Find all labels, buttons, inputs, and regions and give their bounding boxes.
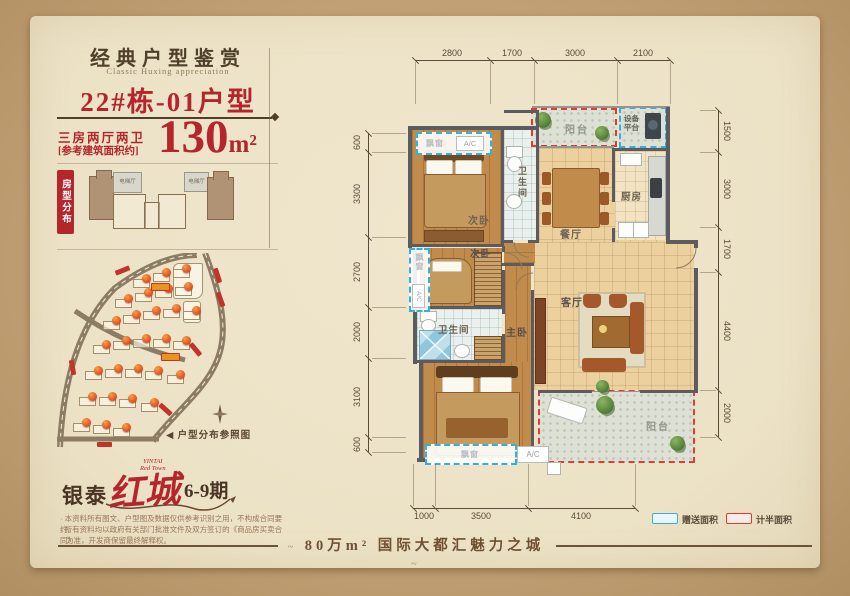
dim-ext <box>372 237 406 238</box>
dim-ext <box>670 62 671 104</box>
dim-ext <box>700 152 716 153</box>
ac-unit-label: A/C <box>456 136 484 151</box>
building-number-badge <box>162 268 171 277</box>
dim-bottom-1: 1000 <box>404 511 444 521</box>
highlighted-unit-right <box>207 177 234 220</box>
area-number: 130 <box>158 111 229 163</box>
building-number-badge <box>162 334 171 343</box>
legend-half-label: 计半面积 <box>756 513 792 526</box>
building-number-badge <box>184 282 193 291</box>
dim-left-2: 3300 <box>352 174 362 214</box>
tagline-flourish-right: ~ <box>411 559 420 570</box>
armchair <box>609 294 627 308</box>
building-number-badge <box>108 392 117 401</box>
section-line <box>57 249 278 250</box>
kitchen-cabinet <box>618 222 634 238</box>
highlighted-unit-left <box>89 176 114 220</box>
dim-ext <box>700 390 716 391</box>
building-number-badge <box>142 274 151 283</box>
dresser <box>424 230 484 242</box>
dim-top-2: 1700 <box>492 48 532 58</box>
bath1-label: 卫生间 <box>516 166 529 199</box>
building-number-badge <box>94 366 103 375</box>
floor-distribution-diagram: 电梯厅 电梯厅 <box>85 166 237 236</box>
road-label <box>97 442 112 447</box>
site-map-caption: ◀ 户型分布参照图 <box>166 427 251 441</box>
dim-ext <box>372 437 406 438</box>
building-number-badge <box>154 366 163 375</box>
building-number-badge <box>124 294 133 303</box>
dim-line-top <box>415 60 670 61</box>
ac-unit-label: A/C <box>412 284 425 308</box>
dim-ext <box>372 358 406 359</box>
tv-cabinet <box>535 298 546 384</box>
bed-pillow <box>442 377 474 393</box>
dim-ext <box>534 62 535 104</box>
dim-bottom-3: 4100 <box>561 511 601 521</box>
dim-right-1: 1500 <box>722 111 732 151</box>
dim-ext <box>372 452 406 453</box>
tagline: ~ 80万m² 国际大都汇魅力之城 ~ <box>283 534 549 572</box>
living-label: 客厅 <box>561 294 583 309</box>
dim-ext <box>415 62 416 104</box>
master-label: 主卧 <box>506 324 528 339</box>
dim-ext <box>635 464 636 506</box>
dining-chair <box>542 212 551 225</box>
dining-chair <box>600 172 609 185</box>
wardrobe <box>474 252 502 306</box>
stove-icon <box>650 178 662 198</box>
dim-ext <box>700 272 716 273</box>
spec-area-value: 130m² <box>158 110 257 164</box>
coffee-table <box>592 316 630 348</box>
kitchen-sink-icon <box>620 153 642 166</box>
facility-label <box>161 353 180 361</box>
building-number-badge <box>182 264 191 273</box>
dim-right-4: 4400 <box>722 311 732 351</box>
sink-icon <box>454 344 470 358</box>
facility-label <box>151 283 170 291</box>
bedroom2-label: 次卧 <box>468 212 490 227</box>
dim-ext <box>700 437 716 438</box>
bay-window-label: 飘窗 <box>426 138 444 149</box>
bed-pillow <box>480 377 512 393</box>
tagline-flourish-left: ~ <box>288 542 297 553</box>
page-subtitle: Classic Huxing appreciation <box>57 66 279 76</box>
flyer-page: 经典户型鉴赏 Classic Huxing appreciation 22#栋-… <box>0 0 850 596</box>
dining-chair <box>600 212 609 225</box>
building-number-badge <box>122 336 131 345</box>
dining-chair <box>600 192 609 205</box>
bath2-label: 卫生间 <box>438 322 470 336</box>
sofa <box>582 358 626 372</box>
table-decor <box>599 325 607 333</box>
armchair <box>583 294 601 308</box>
section-line <box>57 163 278 164</box>
closet <box>474 336 502 360</box>
bed-runner <box>446 418 508 438</box>
bed-pillow <box>426 160 453 175</box>
logo-brand: 银泰 <box>62 480 108 510</box>
elevator-hall-left: 电梯厅 <box>113 172 142 193</box>
building-number-badge <box>102 340 111 349</box>
building-number-badge <box>142 334 151 343</box>
dim-ext <box>700 110 716 111</box>
adjacent-unit-outline <box>113 194 146 229</box>
building-number-badge <box>134 364 143 373</box>
legend-gift-label: 赠送面积 <box>682 513 718 526</box>
bedroom3-label: 次卧 <box>470 246 491 260</box>
dining-label: 餐厅 <box>560 226 582 241</box>
dim-left-1: 600 <box>352 122 362 162</box>
bay-window-label: 飘窗 <box>461 449 479 460</box>
dim-ext <box>372 152 406 153</box>
building-number-badge <box>172 304 181 313</box>
dim-ext <box>372 307 406 308</box>
adjacent-unit-outline <box>158 194 186 229</box>
bay-window-label: 飘窗 <box>414 253 425 271</box>
ac-unit-label: A/C <box>517 446 549 463</box>
building-number-badge <box>102 420 111 429</box>
dim-left-4: 2000 <box>352 312 362 352</box>
legend-gift-swatch <box>652 513 678 524</box>
area-unit: m² <box>229 131 257 158</box>
bay-window-bedroom2: 飘窗 A/C <box>416 132 492 155</box>
dim-top-3: 3000 <box>555 48 595 58</box>
dim-right-2: 3000 <box>722 169 732 209</box>
dim-ext <box>413 464 414 506</box>
kitchen-cabinet <box>633 222 649 238</box>
building-number-badge <box>122 423 131 432</box>
building-number-badge <box>192 306 201 315</box>
bay-window-master: 飘窗 <box>425 444 517 465</box>
dim-top-1: 2800 <box>432 48 472 58</box>
dim-ext <box>528 464 529 506</box>
building-number-badge <box>82 418 91 427</box>
building-number-badge <box>128 394 137 403</box>
dim-right-3: 1700 <box>722 229 732 269</box>
dining-chair <box>542 172 551 185</box>
dim-ext <box>372 133 406 134</box>
kitchen-label: 厨房 <box>621 189 642 203</box>
building-number-badge <box>152 306 161 315</box>
bay-window-bedroom3: 飘窗 A/C <box>409 248 430 312</box>
building-number-badge <box>132 310 141 319</box>
building-number-badge <box>112 316 121 325</box>
dim-line-bottom <box>413 508 635 509</box>
dining-table <box>552 168 600 228</box>
dim-ext <box>617 62 618 104</box>
dim-bottom-2: 3500 <box>461 511 501 521</box>
building-number-badge <box>88 392 97 401</box>
dim-left-3: 2700 <box>352 252 362 292</box>
building-number-badge <box>176 370 185 379</box>
ac-condenser <box>547 462 561 475</box>
legend-half-swatch <box>726 513 752 524</box>
elevator-hall-right: 电梯厅 <box>184 172 209 192</box>
bottom-rule-right <box>556 545 812 547</box>
dining-chair <box>542 192 551 205</box>
building-number-badge <box>114 364 123 373</box>
dim-ext <box>435 464 436 506</box>
dim-left-6: 600 <box>352 424 362 464</box>
sofa-side <box>630 302 644 354</box>
highlighted-unit-right-step <box>213 171 229 180</box>
bed-pillow <box>455 160 482 175</box>
spec-area-note: [参考建筑面积约] <box>58 143 139 158</box>
compass-icon <box>211 403 229 425</box>
dim-right-5: 2000 <box>722 393 732 433</box>
highlighted-unit-left-step <box>96 170 112 179</box>
plant-icon <box>596 380 609 393</box>
dim-ext <box>700 227 716 228</box>
dim-line-left <box>368 133 369 452</box>
dim-ext <box>490 62 491 104</box>
dim-top-4: 2100 <box>623 48 663 58</box>
dim-left-5: 3100 <box>352 377 362 417</box>
column-divider <box>269 48 270 248</box>
bottom-rule-left <box>58 545 278 547</box>
bed-pillow <box>432 261 462 272</box>
distribution-label: 房型分布 <box>57 170 74 234</box>
tagline-text: 80万m² 国际大都汇魅力之城 <box>305 538 545 554</box>
